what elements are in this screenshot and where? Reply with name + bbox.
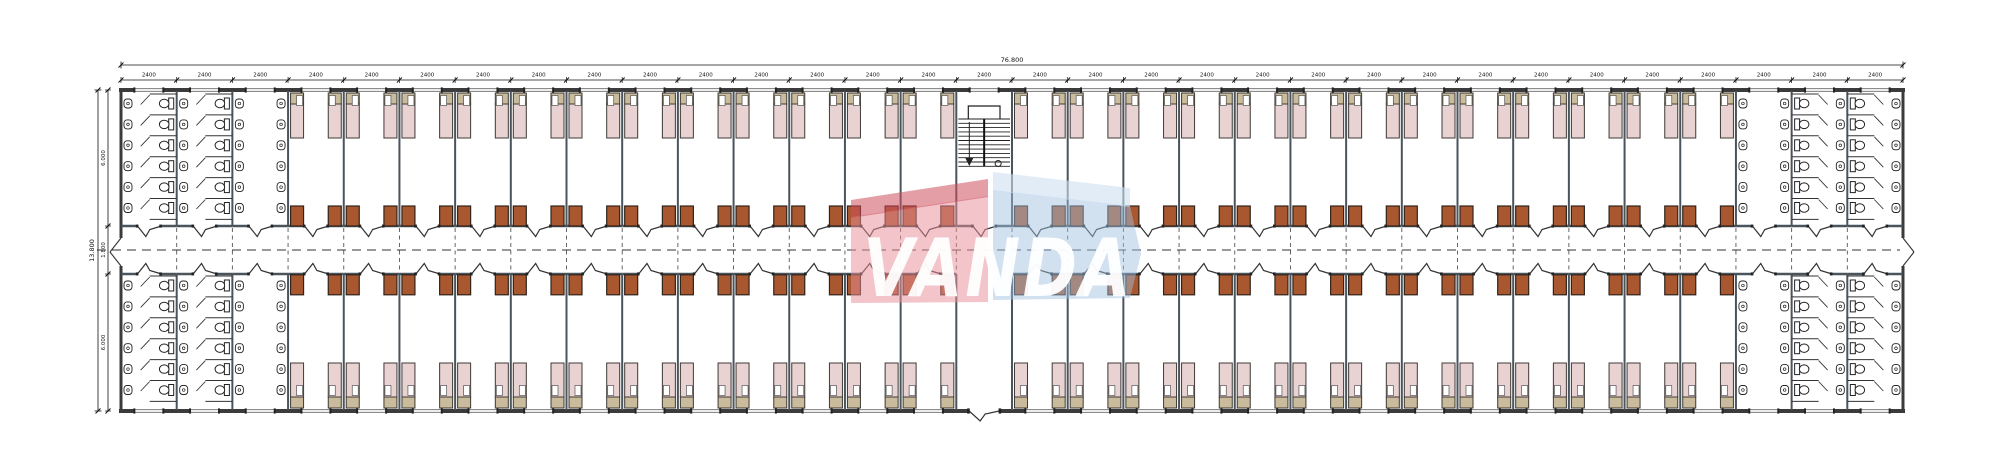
door-jamb (438, 272, 441, 275)
door-jamb (883, 225, 886, 228)
pillow (686, 386, 692, 396)
desk (551, 275, 564, 295)
pillow (1220, 96, 1226, 106)
toilet-bowl-icon (159, 302, 169, 310)
washbasin-icon (180, 302, 188, 311)
desk (847, 206, 860, 226)
window-jamb (1136, 408, 1138, 413)
toilet-bowl-icon (159, 386, 169, 394)
door (806, 227, 828, 237)
door-jamb (1138, 272, 1141, 275)
door (583, 264, 605, 274)
washbasin-icon (1836, 365, 1844, 374)
window-jamb (1053, 87, 1055, 92)
window (580, 408, 608, 414)
door-jamb (526, 272, 529, 275)
door (1363, 264, 1385, 274)
washbasin-icon (180, 99, 188, 108)
window-jamb (1722, 87, 1724, 92)
entrance (967, 408, 1001, 421)
pillow (1499, 96, 1505, 106)
bed-headboard (1182, 397, 1195, 408)
washbasin-icon (1892, 344, 1900, 353)
door-jamb (493, 225, 496, 228)
pillow (1355, 386, 1361, 396)
pillow (329, 386, 335, 396)
door (1140, 264, 1162, 274)
door (750, 227, 772, 237)
bed-headboard (1460, 397, 1473, 408)
toilet-bowl-icon (1799, 281, 1809, 289)
desk (1219, 206, 1232, 226)
door-jamb (995, 225, 998, 228)
bed-headboard (941, 397, 954, 408)
door-jamb (1305, 225, 1308, 228)
window (1304, 87, 1332, 93)
washbasin-icon (235, 344, 243, 353)
bed-headboard (625, 397, 638, 408)
bed-headboard (384, 397, 397, 408)
window-jamb (1666, 408, 1668, 413)
window-jamb (1414, 87, 1416, 92)
door (1586, 227, 1608, 237)
desk (718, 206, 731, 226)
pillow (519, 96, 525, 106)
toilet-bowl-icon (215, 120, 225, 128)
bed-headboard (662, 397, 675, 408)
door (1029, 227, 1051, 237)
window (358, 408, 386, 414)
dimension-bay: 2400 (1478, 73, 1492, 79)
washbasin-icon (1836, 302, 1844, 311)
toilet-bowl-icon (1855, 323, 1865, 331)
pillow (1109, 96, 1115, 106)
door-jamb (136, 272, 139, 275)
door-jamb (271, 272, 274, 275)
door (917, 227, 939, 237)
toilet-bowl-icon (1799, 344, 1809, 352)
dimension-bay: 2400 (1144, 73, 1158, 79)
bed-headboard (1349, 397, 1362, 408)
washbasin-icon (1836, 386, 1844, 395)
desk (662, 275, 675, 295)
window (1861, 87, 1889, 93)
toilet-bowl-icon (1855, 141, 1865, 149)
pillow (909, 386, 915, 396)
window-jamb (441, 87, 443, 92)
pillow (352, 386, 358, 396)
window-jamb (1191, 408, 1193, 413)
window-jamb (886, 408, 888, 413)
door-jamb (1083, 225, 1086, 228)
door (416, 227, 438, 237)
desk (1126, 275, 1139, 295)
door-jamb (939, 225, 942, 228)
window-jamb (635, 87, 637, 92)
pillow (608, 386, 614, 396)
window-jamb (1080, 408, 1082, 413)
window (1137, 408, 1165, 414)
bed-headboard (1665, 397, 1678, 408)
washbasin-icon (277, 99, 285, 108)
window (525, 87, 553, 93)
pillow (1721, 96, 1727, 106)
door (1196, 264, 1218, 274)
door (361, 264, 383, 274)
bed (774, 104, 787, 138)
door-jamb (382, 225, 385, 228)
window-jamb (523, 408, 525, 413)
window-jamb (329, 408, 331, 413)
toilet-bowl-icon (215, 365, 225, 373)
door-jamb (605, 272, 608, 275)
desk (1442, 206, 1455, 226)
bed-headboard (736, 397, 749, 408)
desk (495, 275, 508, 295)
dimension-bay: 2400 (476, 73, 490, 79)
window-jamb (635, 408, 637, 413)
washbasin-icon (1739, 344, 1747, 353)
window (191, 87, 219, 93)
door-jamb (192, 225, 195, 228)
door-jamb (860, 272, 863, 275)
bed (941, 104, 954, 138)
bed-headboard (569, 397, 582, 408)
pillow (1021, 386, 1027, 396)
desk (1404, 206, 1417, 226)
desk (736, 206, 749, 226)
dimension-bay: 2400 (253, 73, 267, 79)
toilet-bowl-icon (159, 183, 169, 191)
window-jamb (385, 408, 387, 413)
desk (1553, 206, 1566, 226)
desk (1070, 206, 1083, 226)
washbasin-icon (1781, 344, 1789, 353)
window (747, 87, 775, 93)
desk (1108, 206, 1121, 226)
washbasin-icon (180, 344, 188, 353)
window (358, 87, 386, 93)
bed (718, 104, 731, 138)
washbasin-icon (1836, 281, 1844, 290)
door (1252, 264, 1274, 274)
door-jamb (359, 272, 362, 275)
desk (607, 206, 620, 226)
pillow (1132, 96, 1138, 106)
bed (829, 104, 842, 138)
pillow (329, 96, 335, 106)
door-jamb (1886, 272, 1889, 275)
window-jamb (802, 408, 804, 413)
desk (941, 275, 954, 295)
door-jamb (999, 408, 1002, 413)
pillow (1188, 96, 1194, 106)
door (1753, 227, 1775, 237)
bed (1571, 104, 1584, 138)
window (1360, 408, 1388, 414)
washbasin-icon (180, 365, 188, 374)
window-jamb (1332, 408, 1334, 413)
window (859, 87, 887, 93)
window (1249, 408, 1277, 414)
desk (774, 275, 787, 295)
toilet-bowl-icon (215, 344, 225, 352)
window (246, 408, 274, 414)
pillow (1499, 386, 1505, 396)
toilet-bowl-icon (1855, 120, 1865, 128)
pillow (1466, 96, 1472, 106)
door-jamb (1472, 225, 1475, 228)
pillow (464, 96, 470, 106)
door (194, 264, 216, 274)
desk (384, 206, 397, 226)
washbasin-icon (124, 281, 132, 290)
pillow (853, 386, 859, 396)
bed-headboard (1553, 397, 1566, 408)
stair-rail (968, 106, 1000, 119)
door (528, 227, 550, 237)
bed (1164, 104, 1177, 138)
door-jamb (581, 225, 584, 228)
door (138, 227, 160, 237)
window-jamb (857, 408, 859, 413)
window-jamb (1889, 87, 1891, 92)
pillow (1243, 96, 1249, 106)
bed-headboard (1052, 397, 1065, 408)
desk (1052, 206, 1065, 226)
door-jamb (1217, 272, 1220, 275)
washbasin-icon (124, 183, 132, 192)
door (1196, 227, 1218, 237)
window-jamb (998, 87, 1000, 92)
window-jamb (412, 87, 414, 92)
washbasin-icon (1781, 281, 1789, 290)
door-jamb (1027, 225, 1030, 228)
door-jamb (637, 272, 640, 275)
window (1750, 408, 1778, 414)
window (1471, 87, 1499, 93)
door-jamb (1273, 272, 1276, 275)
door-jamb (716, 272, 719, 275)
door-jamb (1551, 225, 1554, 228)
bed-headboard (1331, 397, 1344, 408)
door (138, 264, 160, 274)
bed-headboard (1386, 397, 1399, 408)
desk (1331, 206, 1344, 226)
pillow (886, 386, 892, 396)
pillow (686, 96, 692, 106)
window-jamb (1332, 87, 1334, 92)
bed-headboard (1237, 397, 1250, 408)
door-jamb (967, 408, 970, 413)
toilet-bowl-icon (1855, 302, 1865, 310)
washbasin-icon (277, 162, 285, 171)
window-jamb (1693, 408, 1695, 413)
door-jamb (971, 225, 974, 228)
washbasin-icon (1781, 204, 1789, 213)
window-jamb (746, 87, 748, 92)
desk (1571, 206, 1584, 226)
window-jamb (1358, 408, 1360, 413)
bed-headboard (1609, 397, 1622, 408)
window (413, 408, 441, 414)
door-jamb (1806, 225, 1809, 228)
window-jamb (608, 408, 610, 413)
window-jamb (857, 87, 859, 92)
door (639, 264, 661, 274)
bed-headboard (513, 397, 526, 408)
pillow (1689, 96, 1695, 106)
door-jamb (414, 225, 417, 228)
toilet-bowl-icon (1855, 365, 1865, 373)
window-jamb (1833, 408, 1835, 413)
pillow (742, 96, 748, 106)
dimension-bay: 2400 (1534, 73, 1548, 79)
desk (569, 275, 582, 295)
door (750, 264, 772, 274)
window-jamb (1109, 87, 1111, 92)
door (583, 227, 605, 237)
pillow (1299, 386, 1305, 396)
desk (291, 275, 304, 295)
window-jamb (1722, 408, 1724, 413)
door-jamb (215, 272, 218, 275)
pillow (575, 386, 581, 396)
window-jamb (1555, 408, 1557, 413)
door-jamb (359, 225, 362, 228)
desk (1720, 206, 1733, 226)
door-jamb (637, 225, 640, 228)
window-jamb (218, 87, 220, 92)
window (1694, 87, 1722, 93)
window (1249, 87, 1277, 93)
bed (1126, 104, 1139, 138)
bed (1442, 104, 1455, 138)
window-jamb (1470, 87, 1472, 92)
toilet-bowl-icon (215, 302, 225, 310)
washbasin-icon (180, 386, 188, 395)
washbasin-icon (235, 323, 243, 332)
washbasin-icon (124, 141, 132, 150)
pillow (1443, 96, 1449, 106)
bed-headboard (1219, 397, 1232, 408)
washbasin-icon (1781, 120, 1789, 129)
window-jamb (1443, 408, 1445, 413)
door (249, 264, 271, 274)
door (1307, 227, 1329, 237)
window-jamb (1358, 87, 1360, 92)
window-jamb (552, 87, 554, 92)
pillow (1666, 96, 1672, 106)
bed-headboard (718, 397, 731, 408)
desk (1015, 275, 1028, 295)
pillow (886, 96, 892, 106)
bed-headboard (458, 397, 471, 408)
door-jamb (1417, 272, 1420, 275)
door-jamb (1751, 225, 1754, 228)
desk (1349, 206, 1362, 226)
bed (402, 104, 415, 138)
desk (885, 206, 898, 226)
window-jamb (162, 87, 164, 92)
window-jamb (831, 87, 833, 92)
desk (384, 275, 397, 295)
door-jamb (1718, 272, 1721, 275)
window-jamb (1165, 87, 1167, 92)
bed-headboard (792, 397, 805, 408)
pillow (441, 386, 447, 396)
bed-headboard (607, 397, 620, 408)
desk (1126, 206, 1139, 226)
door-jamb (1751, 272, 1754, 275)
door-jamb (1050, 272, 1053, 275)
door-jamb (1217, 225, 1220, 228)
toilet-bowl-icon (1799, 141, 1809, 149)
window-jamb (412, 408, 414, 413)
window-jamb (467, 87, 469, 92)
window-jamb (1581, 87, 1583, 92)
bed (1553, 104, 1566, 138)
door (472, 264, 494, 274)
bed-headboard (1126, 397, 1139, 408)
door (249, 227, 271, 237)
door-jamb (1194, 225, 1197, 228)
window (302, 87, 330, 93)
desk (569, 206, 582, 226)
door-jamb (1329, 225, 1332, 228)
door (1641, 264, 1663, 274)
window (692, 408, 720, 414)
pillow (1387, 96, 1393, 106)
window (914, 408, 942, 414)
desk (941, 206, 954, 226)
door-jamb (1639, 225, 1642, 228)
window-jamb (496, 87, 498, 92)
door-jamb (159, 272, 162, 275)
bed (1015, 104, 1028, 138)
dimension-bay: 2400 (365, 73, 379, 79)
washbasin-icon (277, 365, 285, 374)
window-jamb (356, 87, 358, 92)
window (1026, 87, 1054, 93)
pillow (909, 96, 915, 106)
washbasin-icon (124, 323, 132, 332)
door-jamb (1528, 225, 1531, 228)
door (416, 264, 438, 274)
door-jamb (860, 225, 863, 228)
window-jamb (1303, 87, 1305, 92)
bed-headboard (1164, 397, 1177, 408)
door (639, 227, 661, 237)
desk (458, 206, 471, 226)
toilet-bowl-icon (159, 344, 169, 352)
desk (1182, 206, 1195, 226)
pillow (1522, 96, 1528, 106)
door-jamb (303, 272, 306, 275)
dimension-seg-left: 6.000 (101, 150, 107, 166)
washbasin-icon (124, 302, 132, 311)
pillow (1387, 386, 1393, 396)
window (1416, 408, 1444, 414)
bed-headboard (885, 397, 898, 408)
pillow (1410, 96, 1416, 106)
door (1697, 264, 1719, 274)
window-jamb (1860, 408, 1862, 413)
washbasin-icon (235, 302, 243, 311)
bed-headboard (1516, 397, 1529, 408)
door (1419, 227, 1441, 237)
window-jamb (1637, 87, 1639, 92)
